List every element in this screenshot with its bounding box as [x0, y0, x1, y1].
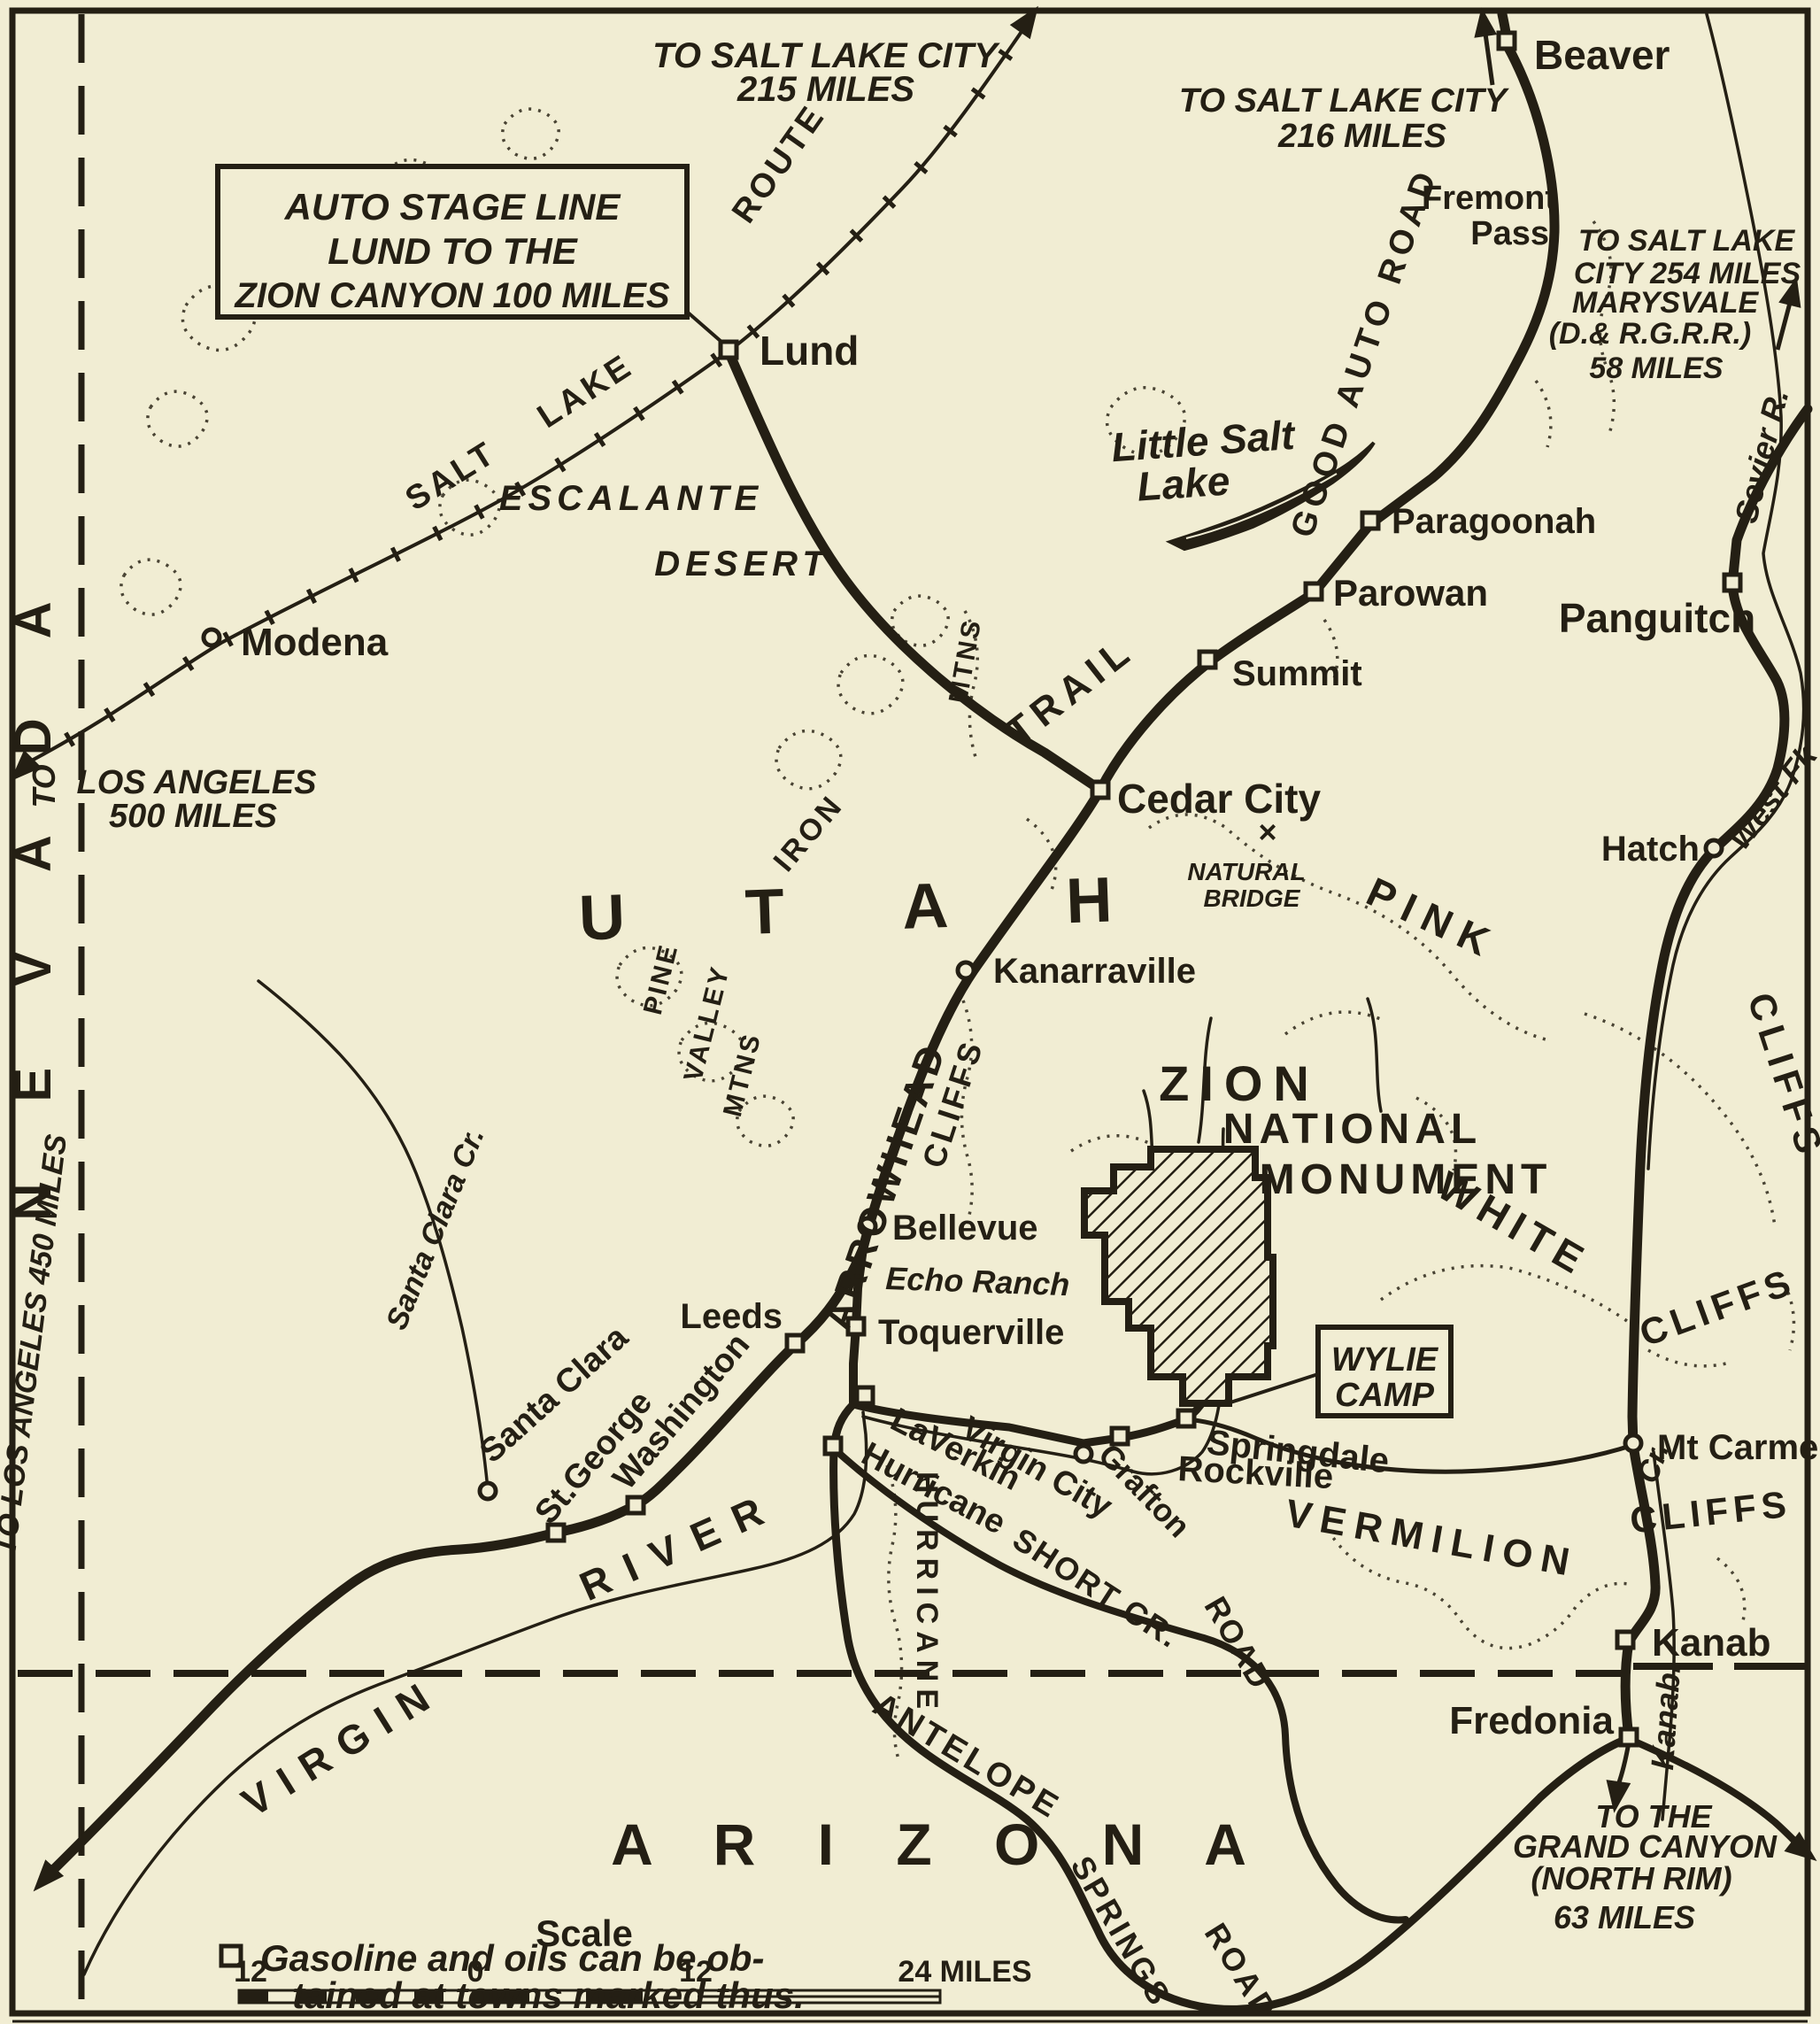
feature-escalante: ESCALANTE — [499, 479, 763, 518]
label-toquerville: Toquerville — [878, 1313, 1064, 1352]
town-marker-laverkin — [857, 1387, 873, 1403]
note-grand-canyon-2: GRAND CANYON — [1513, 1828, 1778, 1865]
label-summit: Summit — [1232, 654, 1362, 693]
town-marker-summit — [1199, 652, 1215, 668]
town-marker-panguitch — [1724, 575, 1740, 591]
label-parowan: Parowan — [1333, 572, 1488, 614]
map-page: AUTO STAGE LINE LUND TO THE ZION CANYON … — [0, 0, 1820, 2024]
label-hatch: Hatch — [1601, 830, 1700, 869]
note-la500-2: 500 MILES — [109, 798, 277, 835]
town-marker-santa-clara — [480, 1483, 496, 1499]
town-marker-lund — [721, 342, 736, 358]
feature-little-salt-2: Lake — [1136, 457, 1231, 509]
scale-24-miles: 24 MILES — [898, 1955, 1031, 1989]
legend-line2: tained at towns marked thus. — [292, 1974, 805, 2016]
note-slc216-1: TO SALT LAKE CITY — [1179, 82, 1510, 120]
note-grand-canyon-4: 63 MILES — [1554, 1899, 1695, 1935]
town-marker-hurricane — [825, 1438, 841, 1454]
town-marker-kanarraville — [958, 962, 974, 978]
route-hurricane-vertical: HURRICANE — [910, 1472, 944, 1716]
park-title-zion: ZION — [1159, 1055, 1320, 1111]
label-echo-ranch: Echo Ranch — [885, 1260, 1070, 1302]
note-marysvale-1: TO SALT LAKE — [1578, 224, 1796, 258]
region-arizona: A R I Z O N A — [611, 1812, 1269, 1877]
label-panguitch: Panguitch — [1559, 595, 1755, 641]
note-la500-1: LOS ANGELES — [77, 764, 317, 801]
label-beaver: Beaver — [1534, 32, 1670, 78]
label-modena: Modena — [241, 621, 389, 664]
town-marker-leeds — [787, 1335, 803, 1351]
town-marker-fredonia — [1621, 1729, 1637, 1745]
town-marker-kanab — [1617, 1632, 1633, 1648]
town-marker-mt-carmel — [1625, 1435, 1641, 1451]
feature-natural-2: BRIDGE — [1204, 885, 1301, 912]
auto-stage-line3: ZION CANYON 100 MILES — [234, 276, 670, 315]
town-marker-washington — [628, 1497, 644, 1513]
note-grand-canyon-3: (NORTH RIM) — [1531, 1860, 1731, 1897]
label-mt-carmel: Mt Carmel — [1657, 1428, 1820, 1467]
auto-stage-line2: LUND TO THE — [328, 230, 579, 272]
town-marker-paragoonah — [1362, 513, 1378, 529]
town-marker-springdale — [1178, 1410, 1194, 1426]
town-marker-hatch — [1706, 840, 1722, 856]
wylie-camp-line2: CAMP — [1335, 1377, 1435, 1414]
region-nevada: N E V A D A — [4, 568, 62, 1220]
town-marker-grafton — [1076, 1446, 1091, 1462]
label-kanab: Kanab — [1652, 1621, 1770, 1665]
feature-natural-1: NATURAL — [1187, 858, 1305, 885]
note-slc216-2: 216 MILES — [1277, 118, 1446, 155]
label-fredonia: Fredonia — [1449, 1699, 1614, 1742]
town-marker-parowan — [1306, 583, 1322, 599]
feature-desert: DESERT — [654, 545, 829, 583]
town-marker-beaver — [1499, 33, 1515, 49]
label-kanarraville: Kanarraville — [993, 952, 1196, 991]
wylie-camp-line1: WYLIE — [1331, 1341, 1439, 1379]
zion-region-map: AUTO STAGE LINE LUND TO THE ZION CANYON … — [0, 0, 1820, 2024]
auto-stage-line1: AUTO STAGE LINE — [284, 186, 622, 228]
park-title-national: NATIONAL — [1223, 1106, 1482, 1153]
label-paragoonah: Paragoonah — [1392, 502, 1596, 541]
label-cedar-city: Cedar City — [1117, 776, 1321, 822]
note-marysvale-3: MARYSVALE — [1572, 286, 1760, 320]
town-marker-modena — [204, 630, 220, 645]
note-marysvale-4: (D.& R.G.R.R.) — [1549, 317, 1752, 351]
note-marysvale-5: 58 MILES — [1589, 351, 1723, 385]
label-fremont-pass: Pass — [1470, 215, 1549, 252]
note-slc215-2: 215 MILES — [736, 70, 914, 109]
label-lund: Lund — [760, 328, 859, 374]
legend-line1: Gasoline and oils can be ob- — [260, 1937, 764, 1979]
town-marker-cedar-city — [1092, 782, 1108, 798]
note-la500-to: TO — [26, 764, 62, 807]
feature-natural-bridge-x: × — [1258, 814, 1276, 850]
feature-kanab-cr-2: Kanab. — [1644, 1663, 1687, 1772]
label-bellevue: Bellevue — [892, 1209, 1038, 1248]
